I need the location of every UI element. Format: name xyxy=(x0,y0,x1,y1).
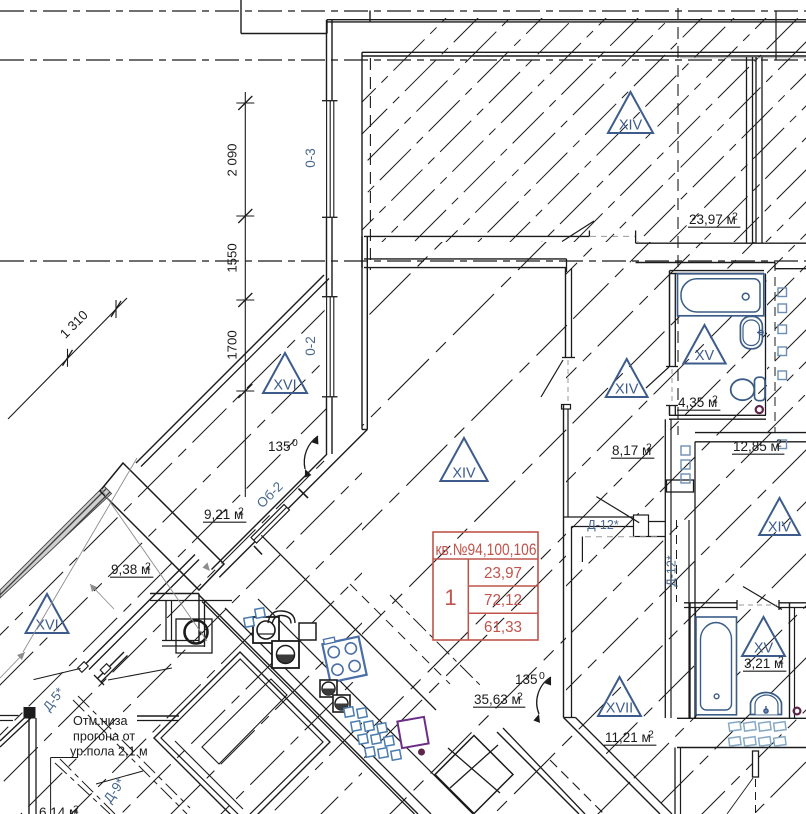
svg-text:XIV: XIV xyxy=(452,466,476,482)
svg-text:0: 0 xyxy=(539,670,545,682)
svg-text:23,97: 23,97 xyxy=(484,565,522,582)
svg-text:2: 2 xyxy=(145,561,151,573)
svg-text:2: 2 xyxy=(776,438,782,450)
svg-text:0-3: 0-3 xyxy=(303,148,318,168)
svg-text:Д-12*: Д-12* xyxy=(587,518,619,532)
svg-text:2: 2 xyxy=(517,691,523,703)
svg-text:2: 2 xyxy=(732,211,738,223)
svg-text:2: 2 xyxy=(73,804,79,814)
svg-text:135: 135 xyxy=(515,672,538,687)
svg-text:кв.№94,100,106: кв.№94,100,106 xyxy=(436,541,537,559)
svg-text:прогона от: прогона от xyxy=(73,730,135,744)
svg-text:72,12: 72,12 xyxy=(484,592,522,609)
svg-text:Отм.низа: Отм.низа xyxy=(73,714,128,728)
svg-text:35,63 м: 35,63 м xyxy=(474,692,521,707)
svg-text:11,21 м: 11,21 м xyxy=(605,730,651,745)
svg-text:XV: XV xyxy=(695,348,715,364)
svg-text:Д-12*: Д-12* xyxy=(665,555,679,587)
svg-text:2: 2 xyxy=(712,394,718,406)
svg-text:0: 0 xyxy=(292,437,298,449)
svg-text:23,97 м: 23,97 м xyxy=(689,212,736,227)
svg-text:135: 135 xyxy=(268,439,291,454)
svg-text:2: 2 xyxy=(238,506,244,518)
svg-text:1700: 1700 xyxy=(225,330,240,359)
svg-text:2: 2 xyxy=(646,442,652,454)
svg-text:XIV: XIV xyxy=(619,118,643,134)
svg-text:1: 1 xyxy=(444,585,456,610)
svg-text:XVII: XVII xyxy=(606,701,633,717)
svg-text:2 090: 2 090 xyxy=(225,143,240,176)
svg-text:2: 2 xyxy=(648,729,654,741)
svg-text:0-2: 0-2 xyxy=(303,336,318,356)
svg-text:ур.пола 2,1 м: ур.пола 2,1 м xyxy=(70,745,148,759)
svg-text:61,33: 61,33 xyxy=(484,619,522,636)
svg-text:2: 2 xyxy=(778,655,784,667)
svg-text:1550: 1550 xyxy=(225,243,240,272)
svg-text:XIV: XIV xyxy=(615,382,639,398)
svg-text:XIV: XIV xyxy=(768,520,792,536)
svg-text:XVI: XVI xyxy=(273,378,296,394)
svg-text:12,85 м: 12,85 м xyxy=(733,439,780,454)
svg-text:XV: XV xyxy=(754,641,774,657)
